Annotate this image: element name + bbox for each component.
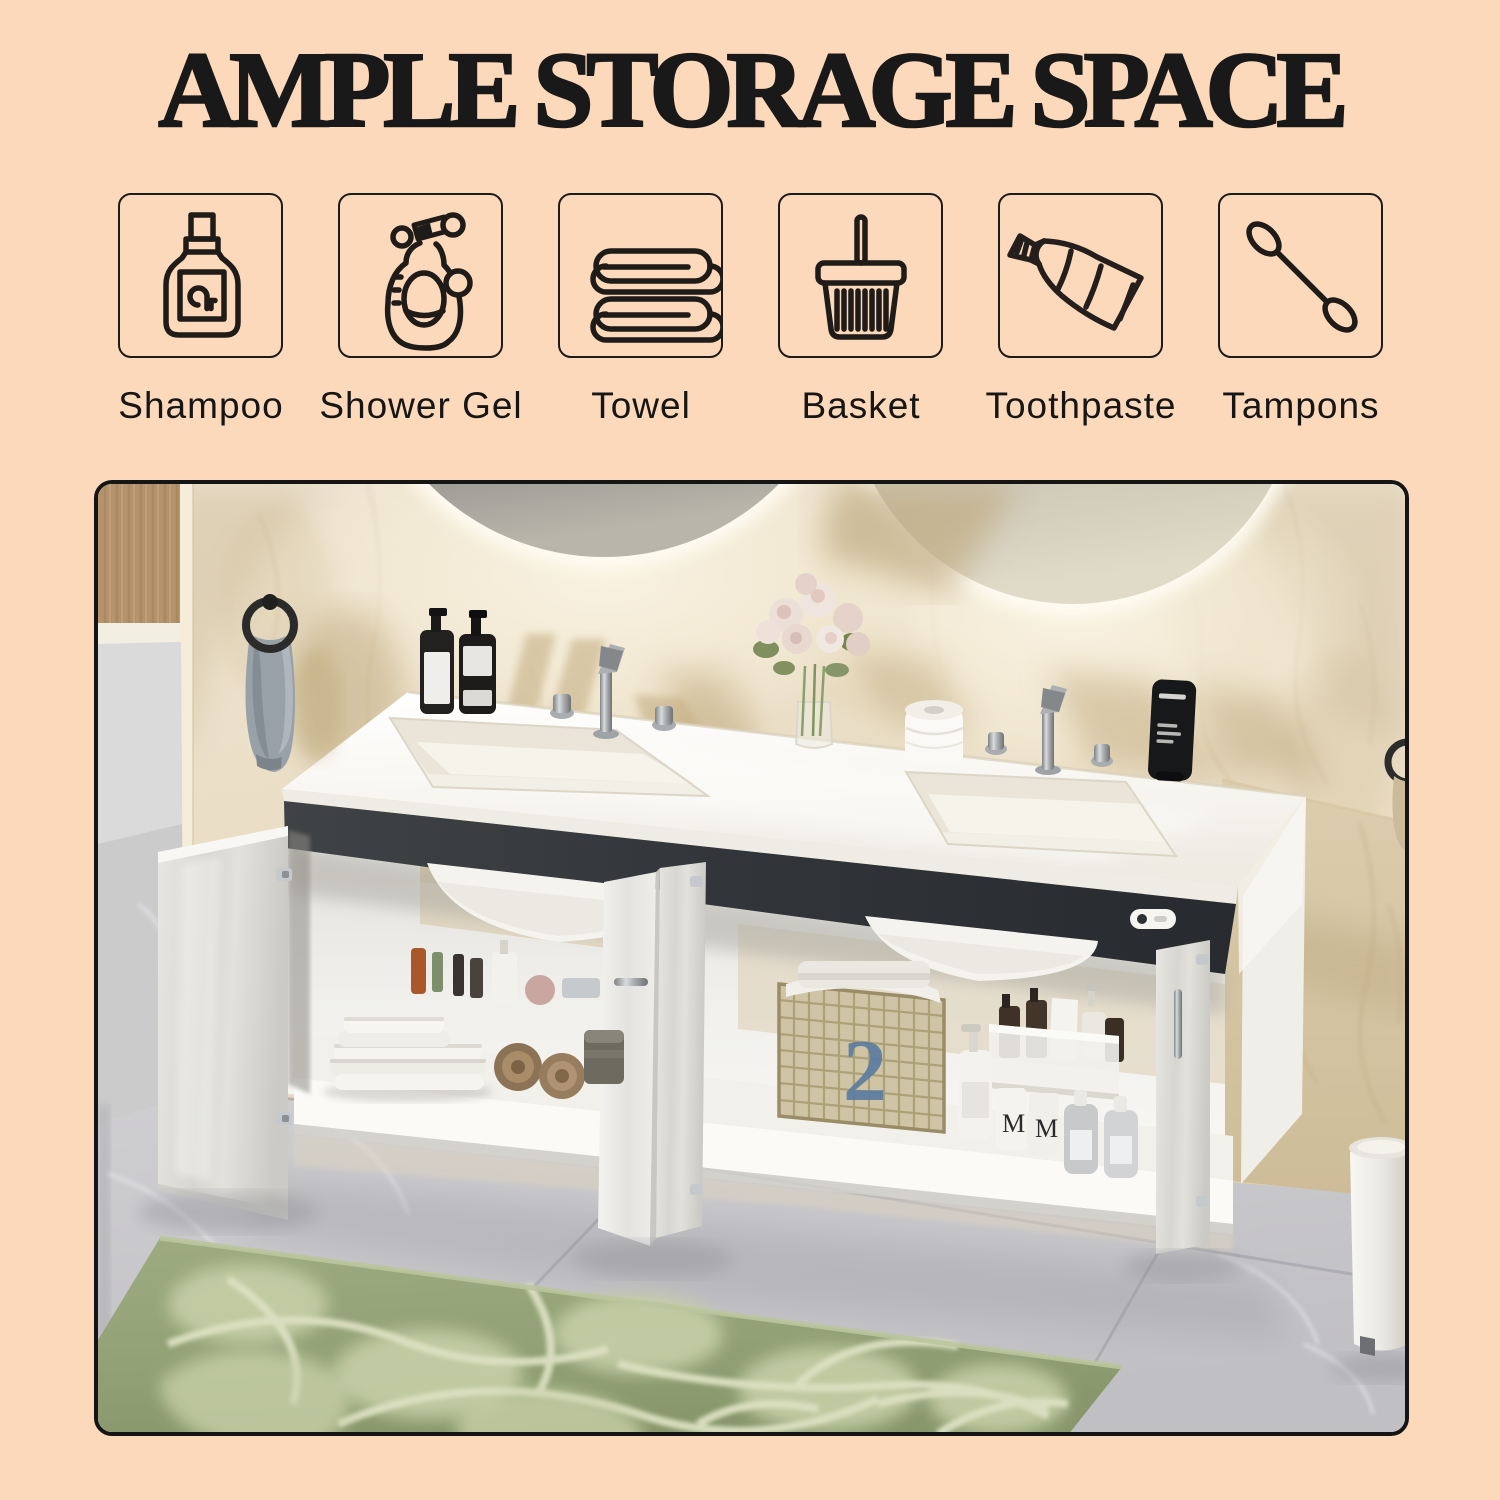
svg-text:M: M: [1035, 1114, 1058, 1143]
svg-text:M: M: [1002, 1109, 1025, 1138]
svg-text:2: 2: [843, 1023, 887, 1120]
